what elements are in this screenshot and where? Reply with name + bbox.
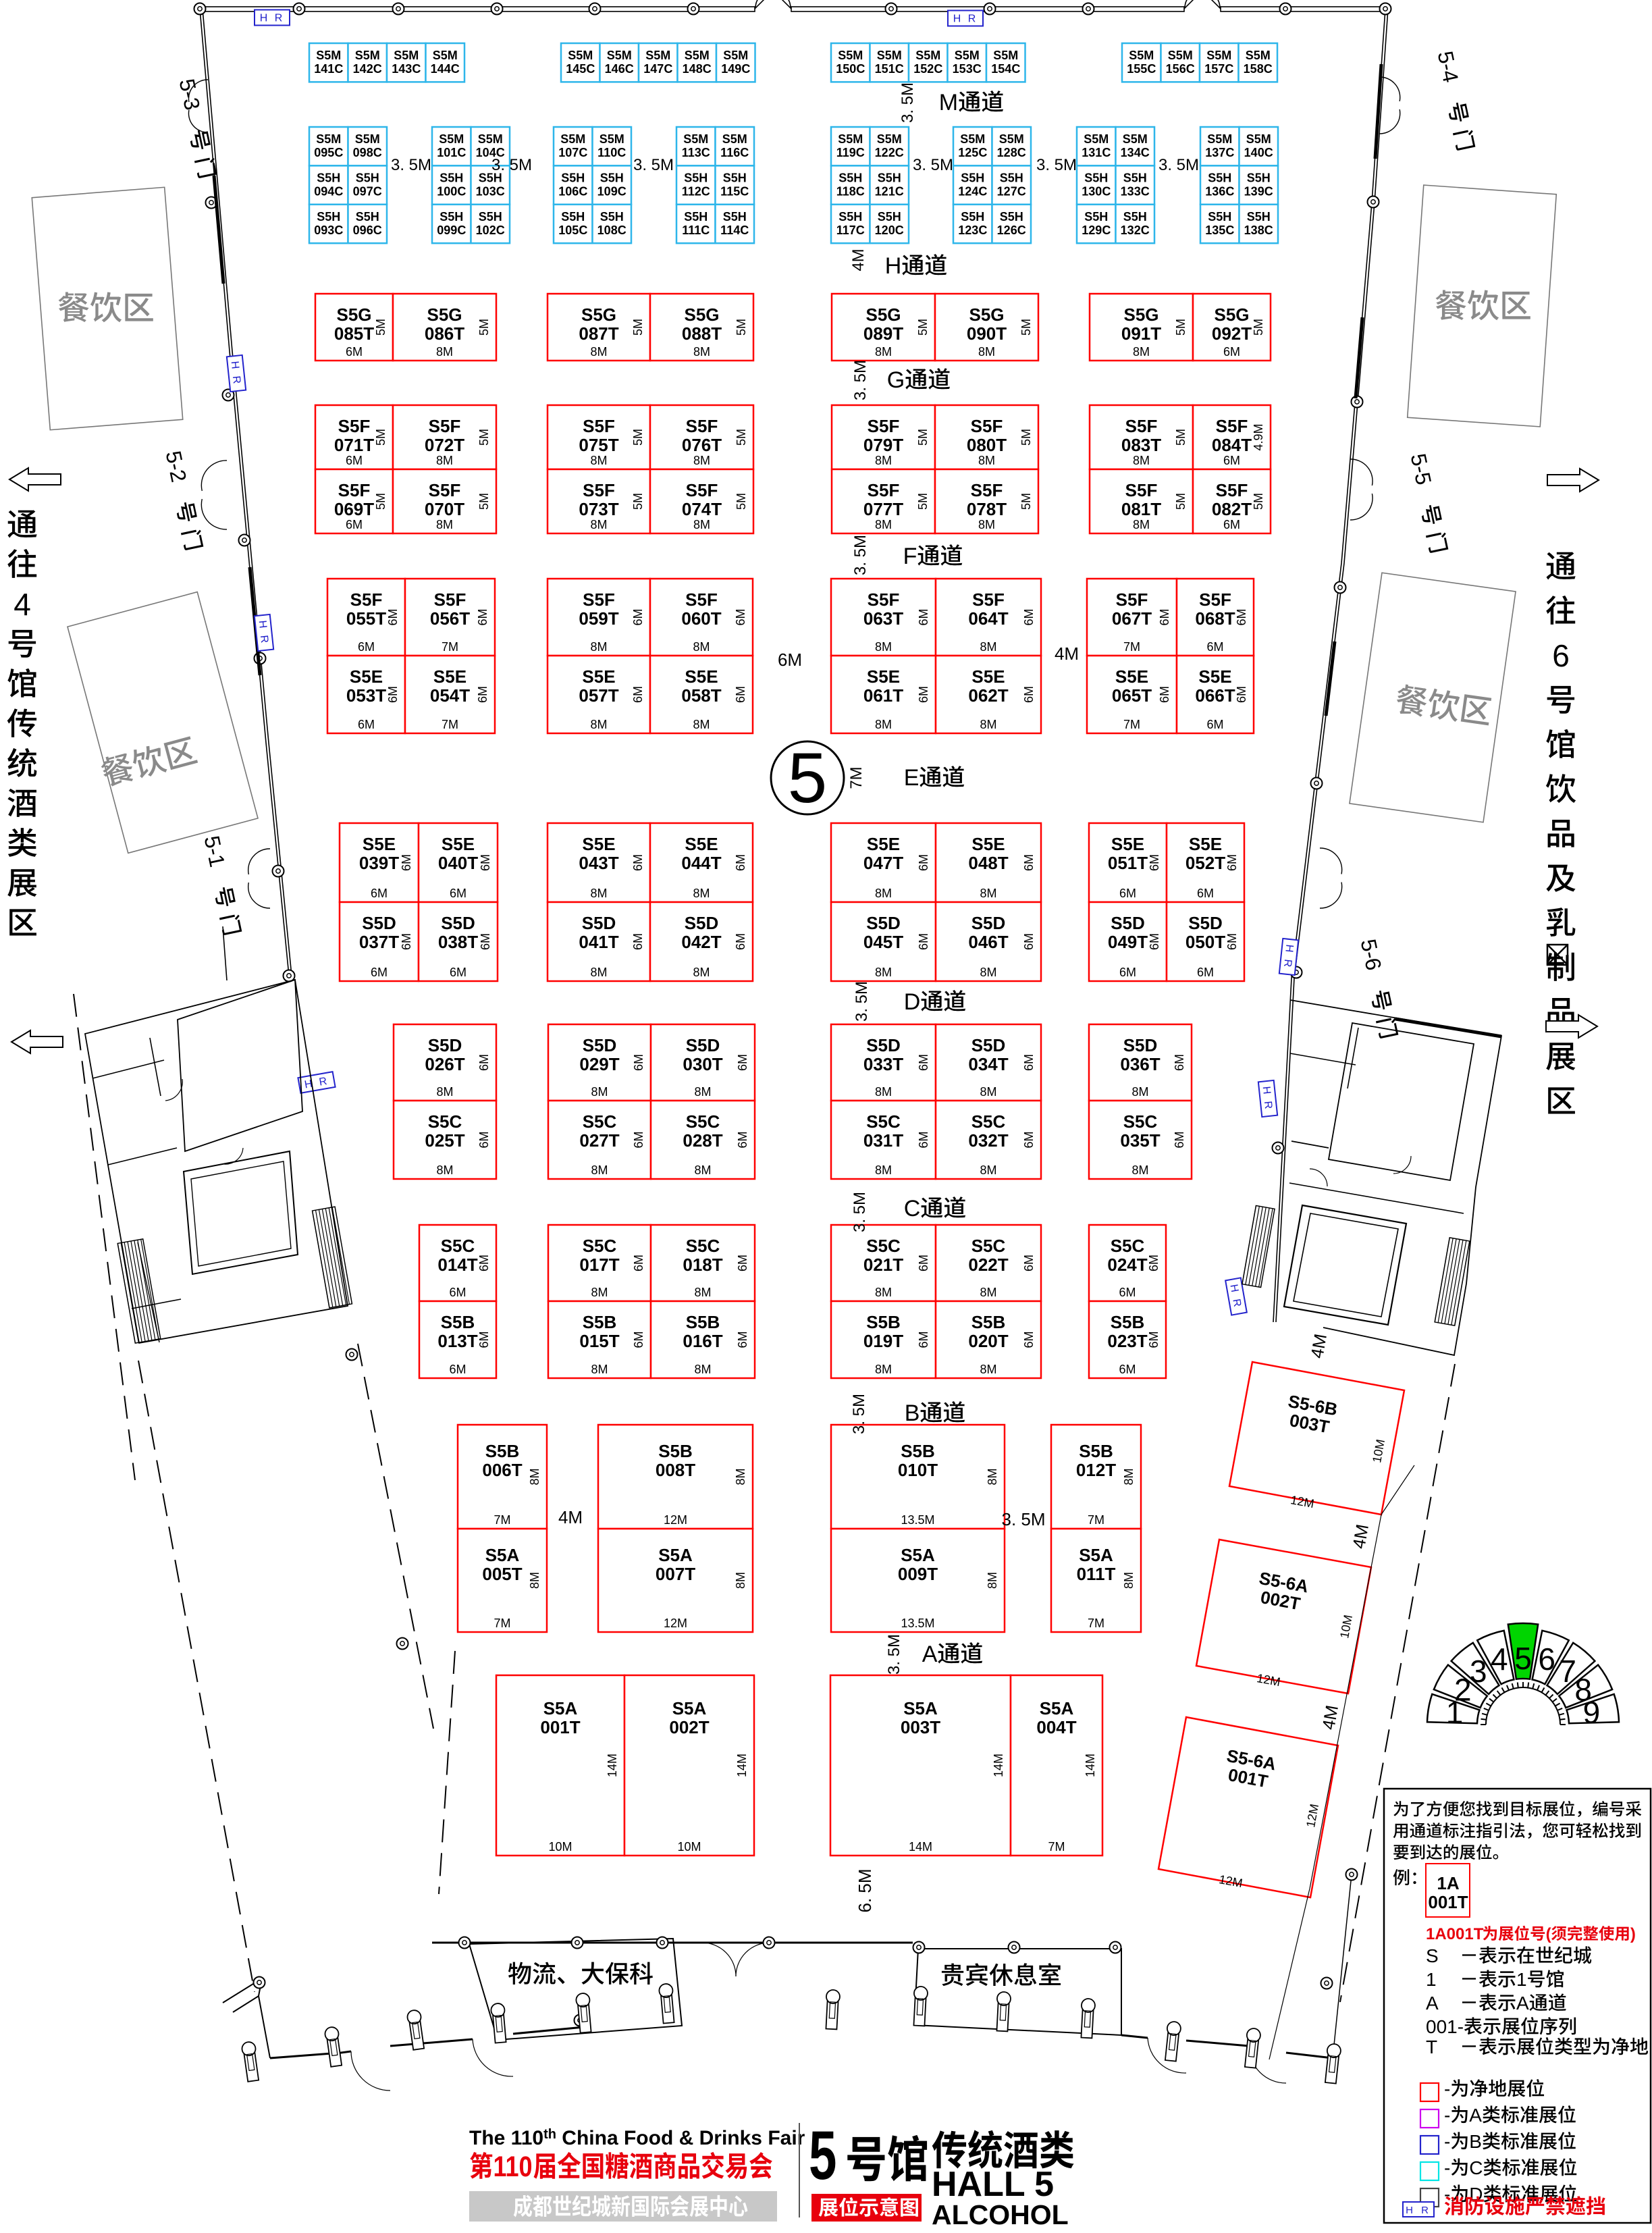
svg-text:8M: 8M [986,1468,999,1485]
svg-text:019T: 019T [863,1331,903,1351]
svg-text:S5F: S5F [686,416,718,436]
svg-text:6M: 6M [1225,933,1239,950]
svg-text:B: B [905,1400,920,1426]
svg-text:S5D: S5D [1111,913,1145,933]
svg-text:S5F: S5F [971,480,1003,500]
svg-text:10M: 10M [677,1840,701,1854]
svg-text:6M: 6M [736,1331,749,1348]
svg-text:155C: 155C [1127,62,1156,76]
svg-text:075T: 075T [579,435,618,455]
svg-text:124C: 124C [958,184,987,198]
svg-text:14M: 14M [735,1754,749,1777]
svg-text:S5B: S5B [866,1312,901,1332]
svg-text:6M: 6M [1022,608,1036,625]
svg-text:S5M: S5M [838,49,863,62]
svg-text:B: B [1469,2131,1482,2152]
svg-text:S5H: S5H [961,171,984,184]
svg-text:6M: 6M [734,686,747,703]
svg-text:S5D: S5D [1123,1035,1158,1055]
svg-text:13.5M: 13.5M [901,1513,934,1527]
svg-text:8M: 8M [1133,345,1150,359]
svg-text:3. 5M: 3. 5M [491,156,532,174]
svg-text:S5C: S5C [583,1111,617,1132]
svg-text:8M: 8M [436,1163,453,1177]
svg-text:078T: 078T [967,499,1007,519]
svg-text:5M: 5M [1019,493,1033,510]
svg-text:6M: 6M [477,1255,491,1271]
svg-text:3. 5M: 3. 5M [850,1394,868,1434]
svg-text:091T: 091T [1121,323,1161,344]
svg-text:S5G: S5G [684,305,719,325]
svg-text:012T: 012T [1076,1460,1116,1480]
svg-text:5M: 5M [374,319,388,336]
svg-text:8M: 8M [978,518,995,531]
svg-text:S5C: S5C [866,1111,901,1132]
svg-text:S5F: S5F [972,589,1005,610]
svg-text:6M: 6M [778,650,802,670]
svg-text:S5M: S5M [915,49,940,62]
svg-text:HALL 5: HALL 5 [932,2165,1054,2204]
svg-text:S5C: S5C [971,1236,1006,1256]
svg-text:S5F: S5F [350,589,383,610]
svg-text:8M: 8M [734,1468,747,1485]
svg-text:6M: 6M [449,1363,466,1376]
svg-text:S5A: S5A [658,1545,693,1565]
svg-text:S5C: S5C [428,1111,462,1132]
svg-text:S5G: S5G [581,305,616,325]
svg-text:150C: 150C [836,62,865,76]
svg-text:6M: 6M [734,608,747,625]
svg-text:S5M: S5M [877,49,902,62]
svg-text:8M: 8M [875,966,892,979]
svg-text:143C: 143C [392,62,421,76]
svg-text:6M: 6M [1119,1363,1136,1376]
svg-text:043T: 043T [579,853,618,873]
svg-text:3. 5M: 3. 5M [913,156,953,174]
svg-text:020T: 020T [968,1331,1008,1351]
svg-text:7M: 7M [494,1617,510,1630]
svg-text:S5H: S5H [723,210,747,224]
svg-text:8M: 8M [1131,1085,1148,1099]
svg-text:8M: 8M [875,454,892,467]
svg-text:(: ( [1546,1925,1551,1943]
svg-text:6M: 6M [386,608,400,625]
svg-text:6M: 6M [1022,1255,1036,1271]
svg-text:116C: 116C [720,146,749,159]
svg-text:3. 5M: 3. 5M [1036,156,1077,174]
svg-text:S5M: S5M [568,49,593,62]
svg-text:8M: 8M [875,1363,892,1376]
svg-text:1: 1 [1516,1969,1527,1990]
svg-text:S5F: S5F [1216,480,1248,500]
svg-text:055T: 055T [346,608,386,629]
svg-text:S5M: S5M [838,132,863,146]
svg-text:087T: 087T [579,323,618,344]
svg-text:6M: 6M [386,686,400,703]
svg-text:158C: 158C [1244,62,1273,76]
svg-text:S5D: S5D [441,913,475,933]
svg-text:113C: 113C [682,146,710,159]
svg-text:S5B: S5B [485,1441,520,1461]
svg-text:139C: 139C [1244,184,1273,198]
svg-text:S5C: S5C [686,1111,720,1132]
svg-text:135C: 135C [1205,224,1234,237]
svg-text:S5H: S5H [1000,210,1023,224]
svg-text:098C: 098C [353,146,382,159]
svg-text:5M: 5M [1019,319,1033,336]
svg-text:3. 5M: 3. 5M [899,82,917,123]
svg-text:8M: 8M [980,887,996,900]
svg-text:T: T [1426,2037,1437,2057]
svg-text:S5H: S5H [878,210,901,224]
svg-text:ALCOHOL: ALCOHOL [932,2199,1069,2230]
svg-text:S5E: S5E [685,666,718,687]
svg-text:S5E: S5E [971,666,1005,687]
svg-text:S5B: S5B [971,1312,1006,1332]
svg-text:7M: 7M [494,1513,510,1527]
svg-text:S5A: S5A [485,1545,520,1565]
svg-text:8M: 8M [590,454,607,467]
svg-text:S5M: S5M [722,132,747,146]
svg-text:M: M [939,90,958,115]
svg-text:048T: 048T [968,853,1008,873]
svg-text:S5C: S5C [971,1111,1006,1132]
svg-text:S5M: S5M [316,49,341,62]
svg-text:S5H: S5H [838,171,862,184]
svg-text:051T: 051T [1108,853,1148,873]
svg-text:S5D: S5D [582,913,616,933]
svg-text:6M: 6M [1173,1131,1186,1148]
svg-text:S5H: S5H [479,210,502,224]
svg-text:7M: 7M [1088,1617,1104,1630]
svg-text:090T: 090T [967,323,1007,344]
svg-text:S5C: S5C [441,1236,475,1256]
svg-text:021T: 021T [863,1255,903,1275]
svg-text:010T: 010T [898,1460,938,1480]
svg-text:6M: 6M [1022,1331,1036,1348]
svg-text:007T: 007T [656,1564,695,1584]
svg-text:015T: 015T [579,1331,619,1351]
svg-text:034T: 034T [968,1054,1008,1074]
svg-text:6M: 6M [400,933,413,950]
svg-text:S5E: S5E [350,666,383,687]
svg-text:S5F: S5F [1216,416,1248,436]
svg-text:S5H: S5H [561,171,585,184]
svg-text:080T: 080T [967,435,1007,455]
svg-text:8M: 8M [980,1363,996,1376]
svg-text:3. 5M: 3. 5M [851,535,870,575]
svg-text:096C: 096C [353,224,382,237]
svg-text:7M: 7M [1123,718,1140,731]
svg-text:4M: 4M [1055,643,1079,664]
svg-text:8M: 8M [694,1163,711,1177]
svg-text:S5F: S5F [583,480,615,500]
svg-text:8M: 8M [591,1286,608,1299]
svg-text:6M: 6M [346,454,363,467]
svg-text:083T: 083T [1121,435,1161,455]
svg-text:-: - [1444,2105,1450,2126]
svg-text:13.5M: 13.5M [901,1617,934,1630]
svg-text:074T: 074T [682,499,722,519]
svg-text:6M: 6M [631,854,645,871]
svg-text:-: - [1444,2078,1450,2099]
svg-text:032T: 032T [968,1130,1008,1151]
svg-text:6M: 6M [358,640,375,654]
svg-text:S5B: S5B [1111,1312,1145,1332]
svg-text:S5M: S5M [394,49,419,62]
svg-text:12M: 12M [664,1513,687,1527]
svg-text:S5E: S5E [433,666,467,687]
svg-text:6M: 6M [1173,1054,1186,1071]
svg-text:013T: 013T [437,1331,477,1351]
svg-text:8M: 8M [980,1286,996,1299]
svg-text:S5F: S5F [868,589,900,610]
svg-text:6M: 6M [1022,1054,1036,1071]
svg-text:S5F: S5F [583,589,615,610]
svg-text:S5H: S5H [1208,210,1231,224]
svg-text:147C: 147C [643,62,672,76]
svg-text:5M: 5M [374,429,388,446]
svg-text:036T: 036T [1120,1054,1160,1074]
svg-text:123C: 123C [958,224,987,237]
svg-text:S5M: S5M [607,49,632,62]
svg-text:4M: 4M [1306,1332,1331,1360]
svg-text:6M: 6M [1147,1255,1161,1271]
svg-text:106C: 106C [558,184,587,198]
svg-text:A: A [1516,1993,1529,2014]
svg-text:S5C: S5C [583,1236,617,1256]
svg-text:027T: 027T [579,1130,619,1151]
svg-text:006T: 006T [482,1460,522,1480]
svg-text:029T: 029T [579,1054,619,1074]
svg-text:6M: 6M [736,1131,749,1148]
svg-text:100C: 100C [437,184,466,198]
svg-text:S: S [1426,1945,1439,1966]
svg-text:4M: 4M [849,248,868,271]
svg-text:S5F: S5F [868,416,900,436]
svg-text:5: 5 [809,2116,836,2193]
svg-text:016T: 016T [683,1331,722,1351]
svg-text:): ) [1630,1925,1636,1943]
svg-text:S5D: S5D [866,1035,901,1055]
svg-text:S5H: S5H [356,171,379,184]
svg-text:The 110th China Food & Drinks: The 110th China Food & Drinks Fair [469,2127,805,2149]
svg-text:070T: 070T [425,499,464,519]
svg-text:G: G [887,367,905,393]
svg-text:110: 110 [494,2151,533,2182]
svg-text:111C: 111C [682,224,710,237]
svg-text:8M: 8M [693,640,710,654]
svg-text:-: - [1444,2157,1450,2178]
svg-text:6M: 6M [1223,345,1240,359]
svg-text:072T: 072T [425,435,464,455]
svg-text:S5B: S5B [583,1312,617,1332]
svg-text:050T: 050T [1185,932,1225,952]
svg-text:S5M: S5M [999,132,1024,146]
svg-text:037T: 037T [359,932,399,952]
svg-text:134C: 134C [1121,146,1150,159]
svg-text:S5H: S5H [1208,171,1231,184]
svg-text:011T: 011T [1077,1564,1116,1584]
svg-text:6M: 6M [477,1054,491,1071]
svg-text:-: - [1444,2184,1450,2205]
svg-text:S5F: S5F [971,416,1003,436]
svg-text:3. 5M: 3. 5M [633,156,674,174]
svg-text:6M: 6M [450,887,467,900]
svg-text:5M: 5M [1019,429,1033,446]
svg-text:S5H: S5H [1000,171,1023,184]
svg-text:S5M: S5M [1206,49,1231,62]
svg-text:8M: 8M [693,966,710,979]
svg-text:6M: 6M [1235,686,1248,703]
svg-text:3: 3 [1470,1654,1487,1689]
svg-text:8M: 8M [590,345,607,359]
svg-text:8M: 8M [528,1468,541,1485]
svg-text:8M: 8M [436,454,453,467]
svg-text:144C: 144C [431,62,460,76]
svg-text:8M: 8M [693,718,710,731]
svg-text:6M: 6M [1022,1131,1036,1148]
svg-text:3. 5M: 3. 5M [391,156,431,174]
svg-text:002T: 002T [669,1717,709,1737]
svg-text:5M: 5M [631,493,645,510]
svg-text:5M: 5M [631,429,645,446]
svg-text:S5C: S5C [686,1236,720,1256]
svg-text:S5M: S5M [683,132,708,146]
svg-text:065T: 065T [1112,685,1152,706]
svg-text:056T: 056T [430,608,470,629]
svg-text:S5H: S5H [878,171,901,184]
svg-text:081T: 081T [1121,499,1161,519]
svg-text:8M: 8M [875,1163,892,1177]
svg-text:S5A: S5A [543,1698,578,1718]
svg-text:6M: 6M [736,1054,749,1071]
svg-text:S5H: S5H [317,171,340,184]
svg-text:3. 5M: 3. 5M [1158,156,1199,174]
svg-text:S5E: S5E [1111,834,1144,854]
svg-text:6M: 6M [1022,933,1036,950]
svg-text:S5M: S5M [316,132,341,146]
svg-text:6M: 6M [917,1255,930,1271]
svg-text:119C: 119C [836,146,865,159]
svg-text:8M: 8M [590,718,607,731]
svg-text:156C: 156C [1166,62,1195,76]
svg-text:3. 5M: 3. 5M [885,1634,903,1675]
svg-text:8M: 8M [590,966,607,979]
svg-text:6M: 6M [1119,887,1136,900]
svg-text:S5D: S5D [428,1035,462,1055]
svg-text:S5F: S5F [868,480,900,500]
svg-text:S5B: S5B [441,1312,475,1332]
svg-text:077T: 077T [863,499,903,519]
svg-text:5M: 5M [477,493,491,510]
svg-text:6M: 6M [346,345,363,359]
svg-text:117C: 117C [836,224,865,237]
svg-text:8M: 8M [980,718,996,731]
svg-text:154C: 154C [991,62,1020,76]
svg-text:S5M: S5M [960,132,985,146]
svg-text:108C: 108C [597,224,627,237]
svg-text:8M: 8M [978,454,995,467]
svg-text:063T: 063T [863,608,903,629]
svg-text:12M: 12M [664,1617,687,1630]
svg-text:6M: 6M [1223,518,1240,531]
svg-text:S5D: S5D [686,1035,720,1055]
svg-text:3. 5M: 3. 5M [851,1192,869,1232]
svg-text:8M: 8M [1133,518,1150,531]
svg-text:S5H: S5H [1084,210,1108,224]
svg-text:094C: 094C [314,184,343,198]
svg-text:6M: 6M [1022,854,1036,871]
svg-text:031T: 031T [863,1130,903,1151]
svg-text:005T: 005T [482,1564,522,1584]
svg-text:S5E: S5E [582,666,615,687]
svg-text:1A001T: 1A001T [1426,1925,1484,1943]
svg-text:132C: 132C [1121,224,1150,237]
svg-text:S5E: S5E [1189,834,1222,854]
svg-text:S5M: S5M [685,49,710,62]
svg-text:093C: 093C [314,224,343,237]
svg-text:8M: 8M [591,1085,608,1099]
svg-text:S5M: S5M [1207,132,1232,146]
svg-text:6M: 6M [400,854,413,871]
svg-text:004T: 004T [1036,1717,1076,1737]
svg-text:S5H: S5H [684,210,708,224]
svg-text:8M: 8M [875,718,892,731]
svg-text:8M: 8M [980,966,996,979]
svg-text:E: E [904,765,920,791]
svg-text:022T: 022T [968,1255,1008,1275]
svg-text:S5H: S5H [1247,210,1271,224]
svg-text:S5G: S5G [336,305,371,325]
svg-text:014T: 014T [437,1255,477,1275]
svg-text:8M: 8M [591,1363,608,1376]
svg-text:S5D: S5D [362,913,396,933]
svg-text:6M: 6M [477,1331,491,1348]
svg-text:S5F: S5F [1116,589,1148,610]
svg-text:8M: 8M [978,345,995,359]
svg-text:8M: 8M [1131,1163,1148,1177]
svg-text:S5F: S5F [685,589,718,610]
svg-text:6M: 6M [1119,966,1136,979]
svg-text:7M: 7M [1088,1513,1104,1527]
svg-text:066T: 066T [1195,685,1235,706]
svg-text:14M: 14M [992,1754,1005,1777]
svg-text:8M: 8M [694,1363,711,1376]
svg-text:7M: 7M [1123,640,1140,654]
svg-text:S5H: S5H [723,171,747,184]
svg-text:8M: 8M [590,518,607,531]
svg-text:5M: 5M [916,493,930,510]
svg-text:8M: 8M [1133,454,1150,467]
svg-text:9: 9 [1583,1695,1601,1730]
svg-text:S5H: S5H [439,171,463,184]
svg-text:6M: 6M [632,1131,645,1148]
svg-text:S5E: S5E [363,834,396,854]
svg-text:137C: 137C [1205,146,1234,159]
svg-text:120C: 120C [875,224,904,237]
svg-text:121C: 121C [875,184,904,198]
svg-text:107C: 107C [558,146,587,159]
svg-text:S5M: S5M [433,49,458,62]
svg-text:S5G: S5G [969,305,1004,325]
svg-text:044T: 044T [681,853,721,873]
svg-text:068T: 068T [1195,608,1235,629]
svg-text:140C: 140C [1244,146,1273,159]
svg-text:003T: 003T [901,1717,940,1737]
svg-text:131C: 131C [1082,146,1111,159]
svg-text:5M: 5M [735,493,748,510]
